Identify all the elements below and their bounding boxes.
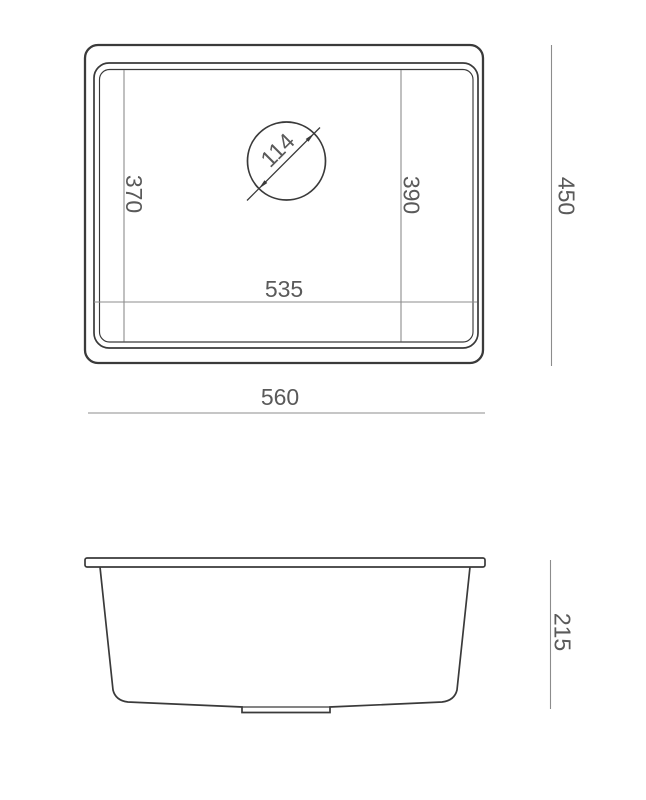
dim-value-bowl-depth-right: 390 <box>399 176 425 214</box>
sink-flange <box>85 558 485 567</box>
dim-value-overall-width: 560 <box>261 384 299 410</box>
dim-value-drain-diameter: 114 <box>255 128 299 172</box>
dim-value-overall-depth: 450 <box>554 177 580 215</box>
sink-body-profile <box>100 567 470 713</box>
dim-value-overall-height: 215 <box>550 613 576 651</box>
top-view: 370 390 535 114 450 560 <box>85 45 580 413</box>
drawing-canvas: 370 390 535 114 450 560 215 <box>0 0 646 800</box>
side-view: 215 <box>85 558 576 713</box>
dim-value-bowl-depth-left: 370 <box>121 175 147 213</box>
dim-value-bowl-width: 535 <box>265 276 303 302</box>
sink-technical-drawing: 370 390 535 114 450 560 215 <box>0 0 646 800</box>
